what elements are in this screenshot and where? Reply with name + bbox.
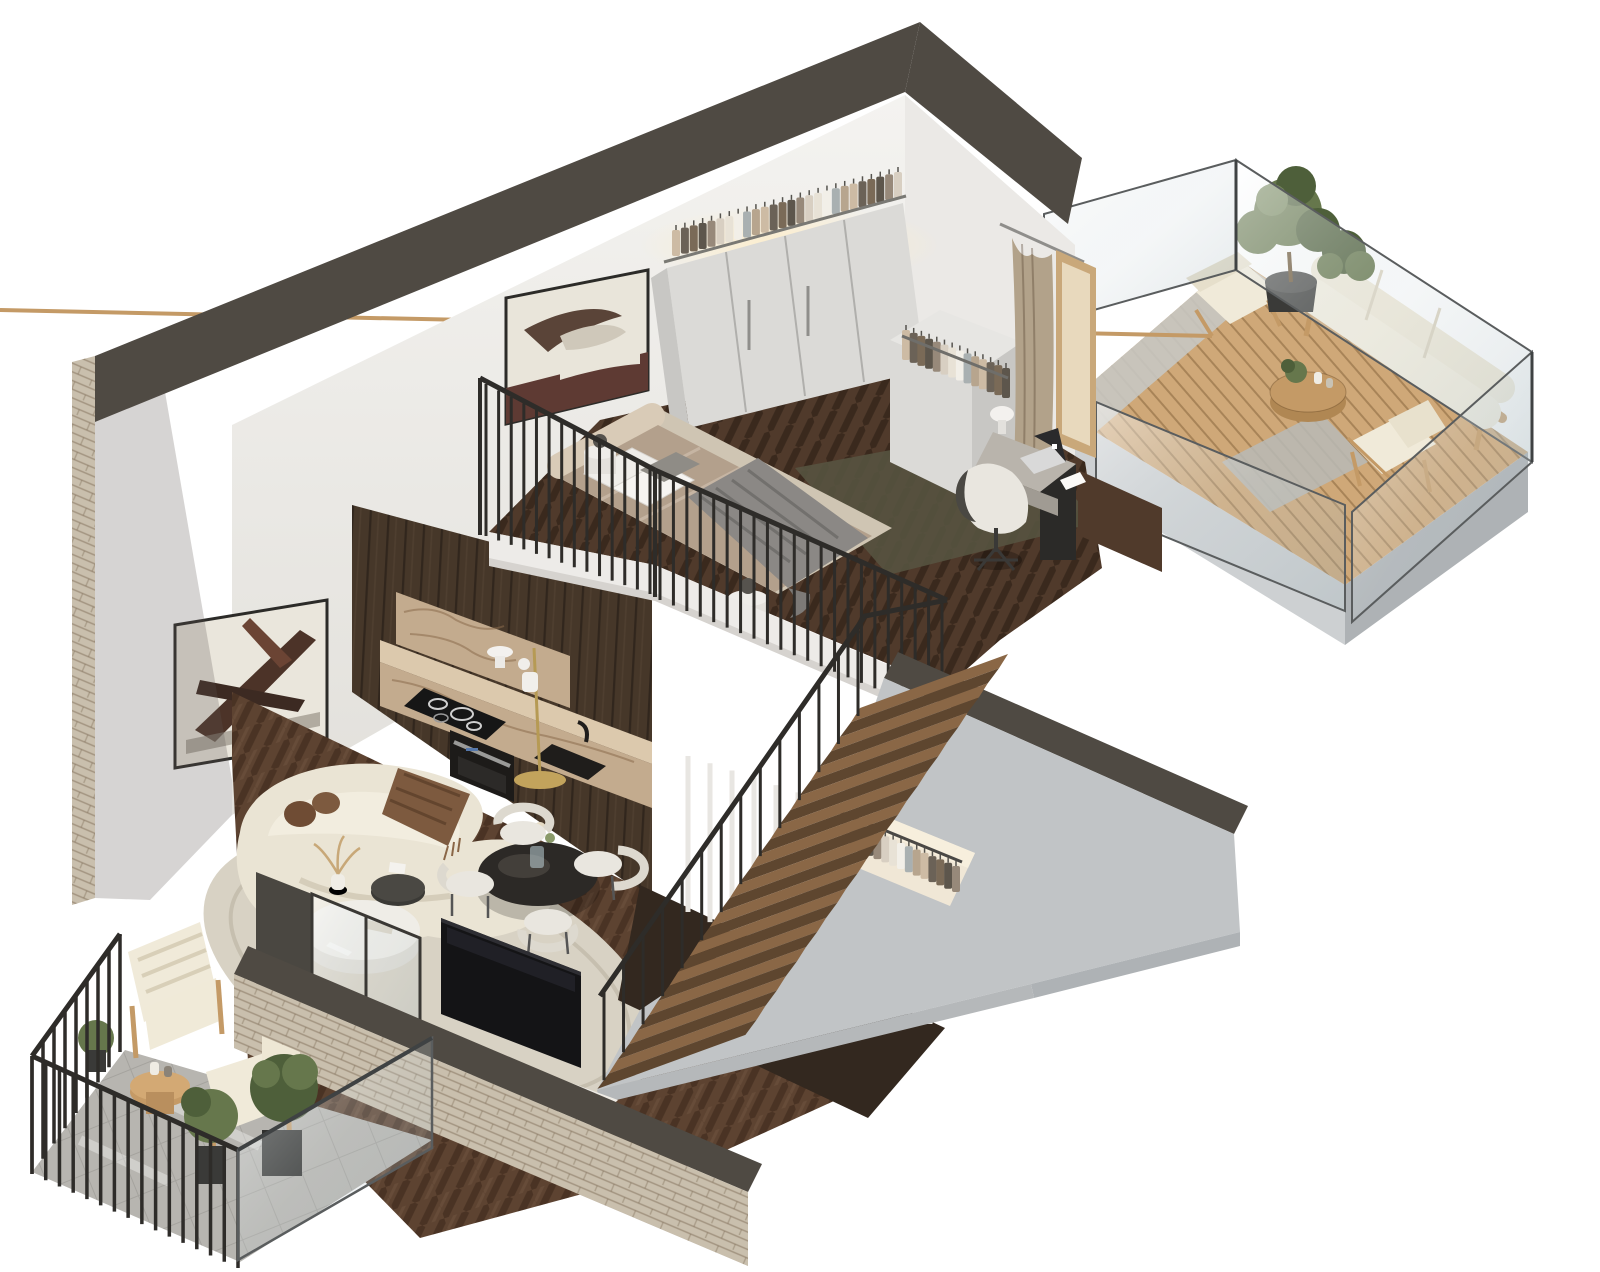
ball-pillow-2: [312, 792, 340, 814]
isometric-apartment-svg: [0, 0, 1600, 1272]
bedroom-doorway: [1056, 250, 1096, 458]
apartment-render-canvas: [0, 0, 1600, 1272]
balcony-armchair-1: [128, 922, 222, 1058]
ball-pillow: [284, 801, 316, 827]
flower-vase: [530, 846, 544, 868]
left-brick-edge-tex: [72, 356, 95, 905]
